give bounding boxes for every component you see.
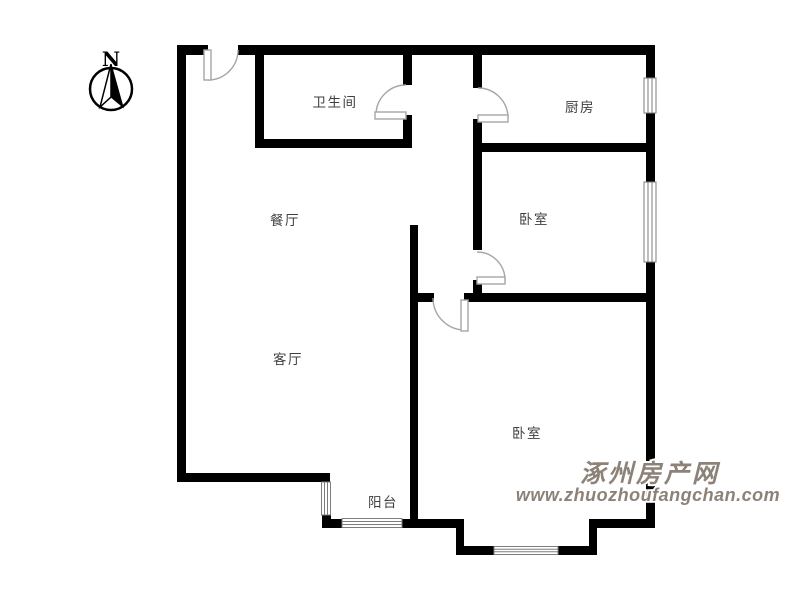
- wall-segment: [255, 45, 264, 148]
- floor-plan-page: N 卫生间 厨房 卧室 餐厅 客厅 卧室 阳台 涿州房产网 www.zhuozh…: [0, 0, 800, 600]
- watermark-site-name: 涿州房产网: [580, 460, 721, 488]
- wall-segment: [646, 45, 655, 78]
- wall-segment: [238, 45, 655, 55]
- window-balcony-bottom: [342, 519, 402, 528]
- room-label-kitchen: 厨房: [565, 100, 595, 115]
- wall-segment: [177, 45, 186, 482]
- wall-segment: [322, 519, 344, 528]
- room-label-dining: 餐厅: [270, 213, 300, 228]
- background: [0, 0, 800, 600]
- wall-segment: [473, 152, 482, 250]
- room-label-bathroom: 卫生间: [313, 95, 358, 110]
- watermark-site-url: www.zhuozhoufangchan.com: [516, 485, 780, 505]
- wall-segment: [589, 519, 655, 528]
- wall-segment: [403, 115, 412, 148]
- wall-segment: [400, 519, 460, 528]
- floor-plan-drawing: N 卫生间 厨房 卧室 餐厅 客厅 卧室 阳台 涿州房产网 www.zhuozh…: [0, 0, 800, 600]
- wall-segment: [464, 293, 655, 302]
- wall-segment: [255, 139, 412, 148]
- wall-segment: [473, 45, 482, 88]
- wall-segment: [403, 45, 412, 85]
- room-label-bedroom-bottom: 卧室: [512, 425, 542, 441]
- wall-segment: [410, 225, 418, 521]
- window-kitchen: [644, 78, 656, 113]
- wall-segment: [410, 293, 434, 302]
- window-bedroom-top: [644, 182, 656, 262]
- room-label-bedroom-top: 卧室: [519, 211, 549, 227]
- wall-segment: [473, 143, 655, 152]
- wall-segment: [456, 546, 496, 555]
- window-bedroom-bottom-bay: [494, 547, 558, 555]
- room-label-living: 客厅: [273, 351, 303, 367]
- wall-segment: [177, 473, 330, 482]
- room-label-balcony: 阳台: [368, 495, 398, 510]
- window-balcony-side: [322, 482, 331, 515]
